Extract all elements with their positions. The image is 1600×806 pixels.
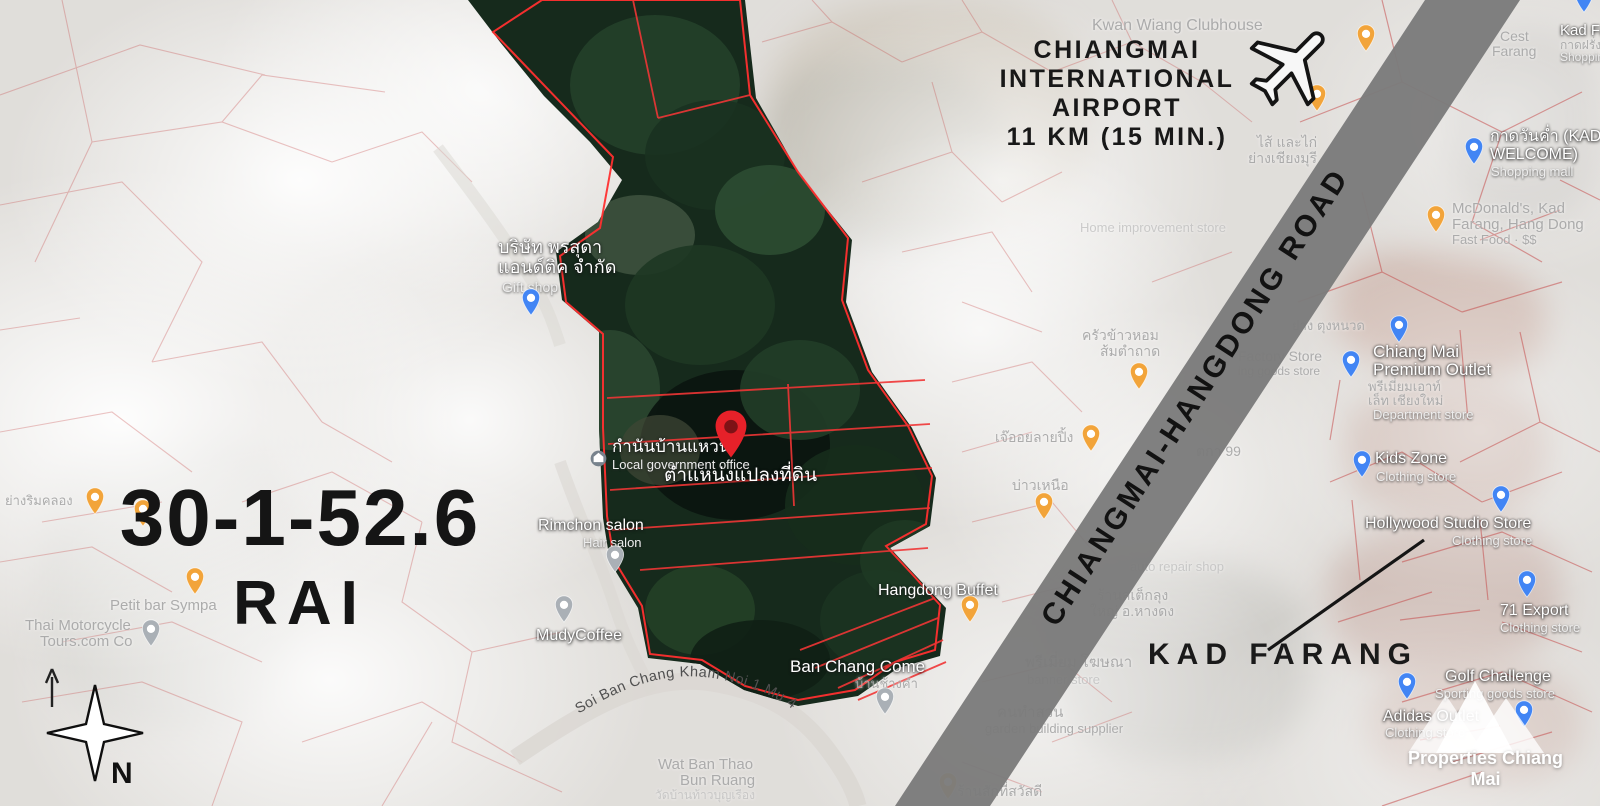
land-area-value: 30-1-52.6	[92, 472, 508, 564]
svg-text:N: N	[111, 757, 133, 790]
airport-line: 11 KM (15 MIN.)	[985, 123, 1249, 152]
airport-line: INTERNATIONAL	[985, 65, 1249, 94]
land-plot-map-poster: Soi Ban Chang Kham Noi 1 Mu 4 Kwan Wiang…	[0, 0, 1600, 806]
watermark-label: Properties Chiang Mai	[1398, 748, 1573, 790]
properties-chiangmai-logo	[1400, 676, 1560, 758]
airport-distance-note: CHIANGMAI INTERNATIONAL AIRPORT 11 KM (1…	[985, 36, 1249, 152]
compass-rose: N	[25, 655, 175, 805]
kad-farang-label: KAD FARANG	[1148, 638, 1418, 672]
land-area-unit: RAI	[92, 568, 508, 639]
airplane-icon	[1243, 16, 1343, 116]
north-arrow-icon	[46, 669, 58, 707]
land-area-title: 30-1-52.6 RAI	[92, 472, 508, 639]
airport-line: CHIANGMAI	[985, 36, 1249, 65]
airport-line: AIRPORT	[985, 94, 1249, 123]
